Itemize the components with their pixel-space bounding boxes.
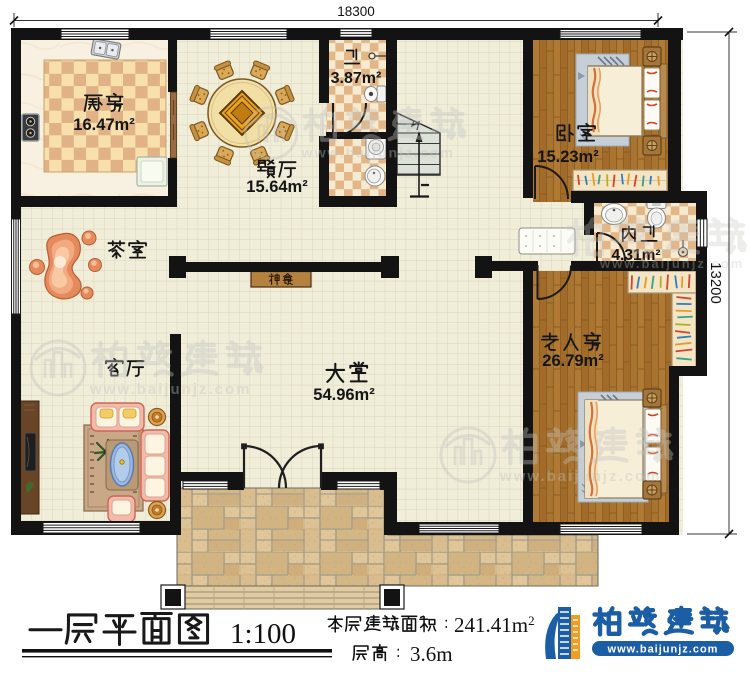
svg-text:15.23m²: 15.23m² <box>537 148 599 166</box>
svg-text:18300: 18300 <box>337 4 375 19</box>
svg-text:26.79m²: 26.79m² <box>542 352 604 370</box>
svg-text:3.87m²: 3.87m² <box>331 70 382 87</box>
svg-text:241.41m2: 241.41m2 <box>454 613 535 637</box>
svg-text:3.6m: 3.6m <box>410 642 453 666</box>
svg-text:13200: 13200 <box>707 262 724 304</box>
svg-text:15.64m²: 15.64m² <box>246 178 308 196</box>
svg-text:www.baijunjz.com: www.baijunjz.com <box>607 644 719 656</box>
svg-text:1:100: 1:100 <box>230 618 296 650</box>
svg-text:16.47m²: 16.47m² <box>73 116 135 134</box>
svg-text:www.baijunjz.com: www.baijunjz.com <box>89 381 251 398</box>
svg-text:www.baijunjz.com: www.baijunjz.com <box>301 146 455 162</box>
svg-text:54.96m²: 54.96m² <box>313 386 375 404</box>
svg-text:www.baijunjz.com: www.baijunjz.com <box>499 468 661 485</box>
